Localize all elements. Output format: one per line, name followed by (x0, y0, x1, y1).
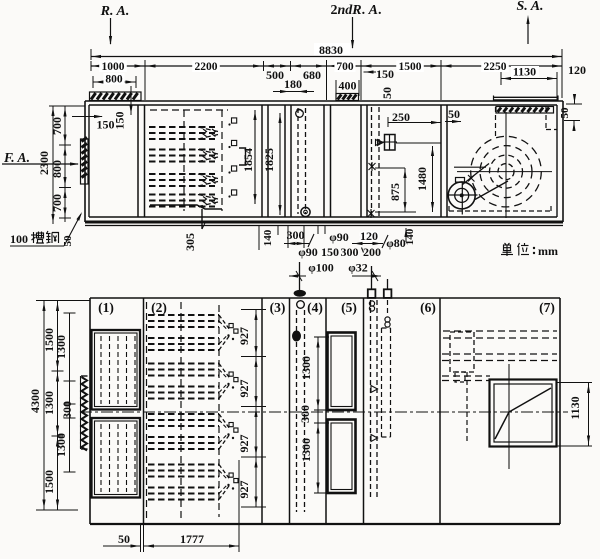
svg-text:2300: 2300 (37, 151, 51, 175)
svg-text:680: 680 (303, 68, 321, 82)
svg-text:(6): (6) (420, 300, 436, 315)
svg-text:150: 150 (113, 112, 127, 130)
svg-text:(4): (4) (307, 300, 323, 315)
svg-text:800: 800 (50, 160, 64, 178)
svg-text:800: 800 (105, 74, 123, 86)
svg-text:1300: 1300 (299, 438, 313, 462)
svg-text:300: 300 (298, 405, 312, 423)
svg-text:2200: 2200 (195, 61, 218, 73)
svg-text:927: 927 (237, 380, 251, 398)
svg-text:1500: 1500 (399, 61, 422, 73)
svg-text:250: 250 (392, 110, 410, 124)
svg-text:1825: 1825 (262, 148, 276, 172)
svg-text:4300: 4300 (28, 389, 42, 413)
svg-text:100: 100 (10, 232, 28, 246)
svg-text:1130: 1130 (568, 396, 582, 419)
svg-text:φ80: φ80 (386, 236, 406, 250)
svg-text:F. A.: F. A. (3, 150, 30, 165)
svg-text:180: 180 (284, 77, 302, 91)
svg-text:1300: 1300 (299, 356, 313, 380)
svg-text:927: 927 (237, 327, 251, 345)
svg-text:(5): (5) (341, 300, 357, 315)
svg-text:300: 300 (341, 245, 359, 259)
svg-text:1777: 1777 (180, 532, 204, 546)
svg-text:φ90: φ90 (298, 245, 318, 259)
svg-text:50: 50 (380, 87, 394, 99)
svg-text:400: 400 (339, 79, 357, 93)
svg-text:φ90: φ90 (329, 230, 349, 244)
svg-text:927: 927 (237, 435, 251, 453)
svg-text:R. A.: R. A. (100, 4, 130, 19)
svg-text:50: 50 (118, 532, 130, 546)
svg-text:700: 700 (50, 194, 64, 212)
svg-text:mm: mm (538, 244, 558, 258)
svg-text:875: 875 (388, 183, 402, 201)
svg-text:1480: 1480 (415, 167, 429, 191)
svg-text:140: 140 (262, 229, 274, 246)
svg-text:120: 120 (360, 229, 378, 243)
svg-text:8830: 8830 (319, 43, 343, 57)
svg-text:300: 300 (287, 228, 305, 242)
svg-text:500: 500 (266, 68, 284, 82)
svg-text:50: 50 (559, 107, 571, 119)
svg-text:700: 700 (336, 61, 354, 73)
svg-text:200: 200 (363, 245, 381, 259)
svg-text:S. A.: S. A. (516, 0, 543, 14)
svg-text:(3): (3) (270, 300, 286, 315)
svg-text:2ndR. A.: 2ndR. A. (331, 3, 382, 18)
svg-text:(7): (7) (539, 300, 555, 315)
svg-text:1130: 1130 (513, 65, 536, 79)
svg-text:1300: 1300 (42, 391, 56, 415)
svg-text:1300: 1300 (54, 433, 68, 457)
svg-text:700: 700 (50, 117, 64, 135)
svg-text:1300: 1300 (54, 335, 68, 359)
svg-text:300: 300 (60, 401, 74, 419)
svg-text:1000: 1000 (102, 61, 125, 73)
svg-text:150: 150 (376, 67, 394, 81)
svg-text:2250: 2250 (484, 61, 507, 73)
svg-text:120: 120 (568, 63, 586, 77)
svg-text:50: 50 (448, 107, 460, 121)
svg-text:140: 140 (404, 228, 416, 245)
svg-text:φ32: φ32 (348, 261, 368, 275)
svg-text:50: 50 (62, 235, 74, 247)
svg-text:(2): (2) (151, 300, 167, 315)
svg-text:305: 305 (183, 233, 197, 251)
svg-text:φ100: φ100 (308, 261, 334, 275)
svg-text:(1): (1) (98, 300, 114, 315)
svg-text:150: 150 (321, 245, 339, 259)
svg-text:1500: 1500 (42, 470, 56, 494)
svg-text:1854: 1854 (241, 148, 255, 172)
